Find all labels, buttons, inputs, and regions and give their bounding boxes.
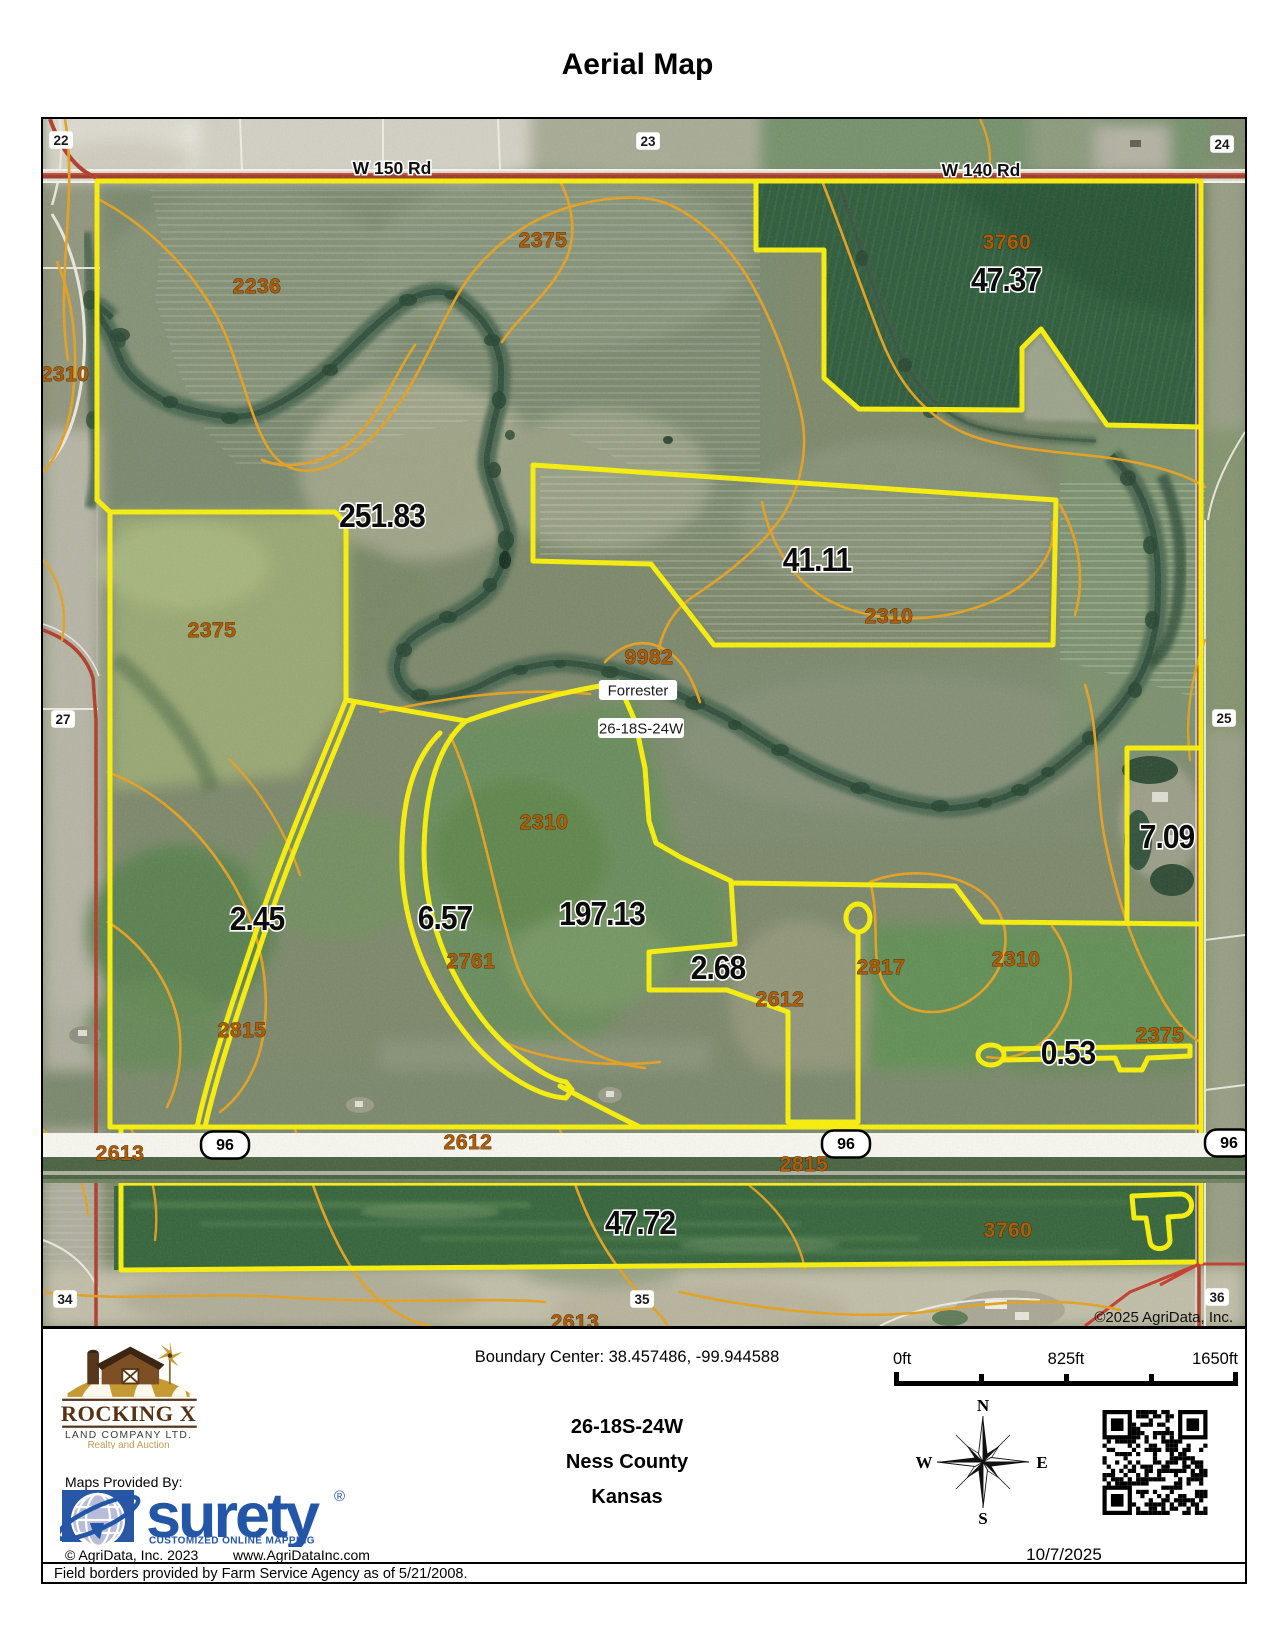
svg-text:3760: 3760 [984,1219,1033,1242]
svg-text:2375: 2375 [519,229,568,252]
svg-text:Forrester: Forrester [608,682,669,699]
svg-text:251.83: 251.83 [339,496,425,534]
svg-text:2817: 2817 [857,956,906,979]
svg-text:197.13: 197.13 [559,894,645,932]
svg-text:2310: 2310 [992,948,1041,971]
svg-text:6.57: 6.57 [418,898,473,936]
svg-text:24: 24 [1214,137,1230,152]
svg-text:2375: 2375 [1136,1024,1185,1047]
svg-text:35: 35 [634,1292,650,1307]
svg-text:2612: 2612 [756,988,805,1011]
svg-text:25: 25 [1216,711,1232,726]
svg-text:2310: 2310 [43,363,89,386]
svg-text:2.68: 2.68 [691,948,746,986]
svg-text:S: S [978,1509,987,1526]
svg-text:2612: 2612 [444,1131,493,1154]
svg-text:2815: 2815 [218,1019,267,1042]
svg-text:®: ® [334,1488,345,1505]
svg-text:2613: 2613 [551,1311,600,1326]
svg-text:2310: 2310 [865,605,914,628]
svg-text:96: 96 [837,1136,855,1153]
svg-text:W: W [916,1453,933,1472]
svg-text:47.72: 47.72 [605,1203,675,1241]
svg-text:41.11: 41.11 [783,540,852,578]
svg-text:0.53: 0.53 [1041,1033,1096,1071]
svg-text:825ft: 825ft [1048,1350,1085,1368]
svg-text:23: 23 [640,134,656,149]
svg-text:2815: 2815 [780,1153,829,1176]
svg-text:7.09: 7.09 [1140,817,1195,855]
svg-text:26-18S-24W: 26-18S-24W [599,720,684,737]
svg-text:2613: 2613 [96,1142,145,1165]
svg-text:0ft: 0ft [893,1350,912,1368]
svg-text:E: E [1036,1453,1047,1472]
svg-text:2.45: 2.45 [230,899,285,937]
svg-text:ROCKING X: ROCKING X [61,1401,196,1426]
svg-text:22: 22 [53,133,68,148]
svg-text:W 140 Rd: W 140 Rd [942,160,1021,180]
svg-text:27: 27 [55,712,70,727]
svg-text:1650ft: 1650ft [1192,1350,1238,1368]
svg-text:34: 34 [57,1292,73,1307]
svg-text:2236: 2236 [233,275,282,298]
svg-text:2375: 2375 [188,619,237,642]
svg-text:W 150 Rd: W 150 Rd [353,158,432,178]
svg-text:96: 96 [216,1137,234,1154]
svg-text:36: 36 [1209,1290,1225,1305]
svg-text:9982: 9982 [625,646,674,669]
svg-text:2310: 2310 [520,811,569,834]
svg-text:96: 96 [1220,1135,1238,1152]
svg-text:3760: 3760 [983,231,1032,254]
svg-text:CUSTOMIZED ONLINE MAPPING: CUSTOMIZED ONLINE MAPPING [149,1536,315,1547]
svg-text:©2025 AgriData, Inc.: ©2025 AgriData, Inc. [1094,1309,1233,1326]
svg-text:N: N [977,1398,990,1415]
svg-text:Realty and Auction: Realty and Auction [87,1440,169,1449]
svg-text:47.37: 47.37 [971,260,1041,298]
svg-text:2761: 2761 [447,950,496,973]
